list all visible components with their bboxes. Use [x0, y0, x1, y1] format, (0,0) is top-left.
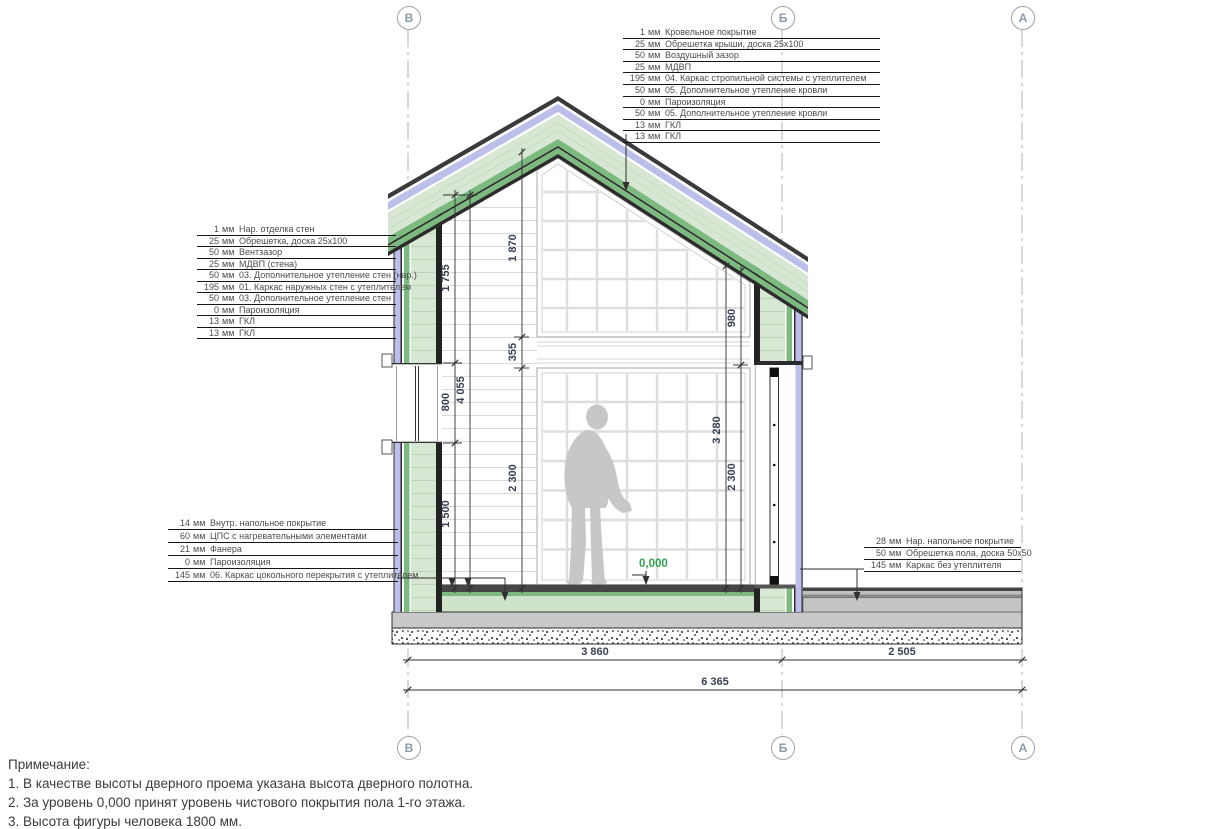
layer-thickness: 50: [623, 108, 645, 119]
layer-unit: мм: [645, 39, 665, 50]
layer-unit: мм: [645, 131, 665, 142]
callout-row: 195 мм 04. Каркас стропильной системы с …: [623, 73, 880, 85]
layer-unit: мм: [886, 548, 906, 559]
layer-thickness: 50: [623, 50, 645, 61]
left-wall-window: [391, 363, 442, 443]
layer-unit: мм: [190, 543, 210, 555]
layer-thickness: 195: [197, 282, 219, 293]
layer-unit: мм: [219, 293, 239, 304]
layer-unit: мм: [886, 560, 906, 571]
dim-span-house: 3 860: [581, 646, 609, 658]
layer-unit: мм: [645, 62, 665, 73]
floor-green-top: [397, 592, 801, 596]
layer-name: Внутр. напольное покрытие: [210, 517, 398, 529]
layer-unit: мм: [219, 316, 239, 327]
layer-thickness: 21: [168, 543, 190, 555]
axis-bubble-v-top: В: [397, 6, 421, 30]
layer-name: МДВП: [665, 62, 880, 73]
layer-thickness: 25: [623, 39, 645, 50]
callout-row: 50 мм 03. Дополнительное утепление стен: [197, 293, 396, 305]
layer-name: Нар. отделка стен: [239, 224, 396, 235]
layer-unit: мм: [645, 27, 665, 38]
callout-row: 13 мм ГКЛ: [197, 328, 396, 340]
notes-block: Примечание: 1. В качестве высоты дверног…: [8, 755, 473, 829]
callout-wall-layers: 1 мм Нар. отделка стен 25 мм Обрешетка, …: [197, 224, 396, 339]
layer-name: ГКЛ: [665, 120, 880, 131]
layer-unit: мм: [645, 73, 665, 84]
door-head-trim: [803, 356, 812, 369]
callout-row: 50 мм Воздушный зазор: [623, 50, 880, 62]
layer-name: Пароизоляция: [239, 305, 396, 316]
layer-name: 03. Дополнительное утепление стен: [239, 293, 396, 304]
callout-row: 13 мм ГКЛ: [623, 131, 880, 143]
callout-floor-terrace-layers: 28 мм Нар. напольное покрытие 50 мм Обре…: [864, 536, 1021, 572]
callout-floor-interior-layers: 14 мм Внутр. напольное покрытие 60 мм ЦП…: [168, 517, 398, 582]
layer-unit: мм: [886, 536, 906, 547]
callout-row: 0 мм Пароизоляция: [168, 556, 398, 569]
callout-row: 50 мм 03. Дополнительное утепление стен …: [197, 270, 396, 282]
layer-thickness: 14: [168, 517, 190, 529]
layer-name: Обрешетка пола, доска 50x50: [906, 548, 1032, 559]
layer-name: Пароизоляция: [665, 97, 880, 108]
layer-name: 04. Каркас стропильной системы с утеплит…: [665, 73, 880, 84]
layer-unit: мм: [190, 517, 210, 529]
layer-name: 05. Дополнительное утепление кровли: [665, 85, 880, 96]
callout-row: 28 мм Нар. напольное покрытие: [864, 536, 1021, 548]
notes-list: 1. В качестве высоты дверного проема ука…: [8, 774, 473, 829]
ground-hatch: [392, 628, 1022, 644]
layer-thickness: 50: [864, 548, 886, 559]
dim-right-total: 3 280: [711, 416, 723, 444]
dim-gable-right: 980: [726, 309, 738, 327]
layer-thickness: 13: [197, 328, 219, 339]
layer-unit: мм: [219, 247, 239, 258]
interior-floor-finish: [442, 585, 754, 593]
dim-window-top: 1 755: [440, 264, 452, 292]
layer-name: Пароизоляция: [210, 556, 398, 568]
axis-bubble-a-bottom: А: [1011, 736, 1035, 760]
layer-thickness: 0: [197, 305, 219, 316]
layer-unit: мм: [219, 236, 239, 247]
layer-name: ГКЛ: [239, 328, 396, 339]
section-drawing: 1 755 800 1 500 4 055 1 870 355 2 300 3 …: [0, 0, 1211, 829]
layer-thickness: 60: [168, 530, 190, 542]
layer-name: МДВП (стена): [239, 259, 396, 270]
callout-row: 145 мм 06. Каркас цокольного перекрытия …: [168, 569, 398, 582]
dim-gable-glazing: 1 870: [507, 234, 519, 262]
callout-row: 13 мм ГКЛ: [623, 120, 880, 132]
layer-thickness: 195: [623, 73, 645, 84]
layer-thickness: 25: [197, 259, 219, 270]
layer-thickness: 50: [197, 293, 219, 304]
dim-room-height: 2 300: [507, 464, 519, 492]
layer-thickness: 25: [197, 236, 219, 247]
layer-unit: мм: [645, 97, 665, 108]
callout-row: 145 мм Каркас без утеплителя: [864, 560, 1021, 572]
notes-title: Примечание:: [8, 755, 473, 774]
dim-band: 355: [507, 343, 519, 361]
layer-thickness: 1: [197, 224, 219, 235]
note-line: 3. Высота фигуры человека 1800 мм.: [8, 812, 473, 829]
window-head-trim: [382, 354, 392, 367]
dim-wall-total: 4 055: [455, 376, 467, 404]
callout-row: 13 мм ГКЛ: [197, 316, 396, 328]
callout-roof-layers: 1 мм Кровельное покрытие 25 мм Обрешетка…: [623, 27, 880, 143]
layer-name: Каркас без утеплителя: [906, 560, 1021, 571]
layer-thickness: 0: [623, 97, 645, 108]
layer-name: 05. Дополнительное утепление кровли: [665, 108, 880, 119]
door-threshold: [754, 585, 796, 589]
layer-name: Нар. напольное покрытие: [906, 536, 1021, 547]
floor-insulated-deck: [397, 596, 801, 612]
layer-name: Вентзазор: [239, 247, 396, 258]
layer-thickness: 13: [623, 131, 645, 142]
layer-name: Кровельное покрытие: [665, 27, 880, 38]
layer-unit: мм: [190, 556, 210, 568]
section-drawing-sheet: 1 755 800 1 500 4 055 1 870 355 2 300 3 …: [0, 0, 1211, 829]
layer-unit: мм: [190, 569, 210, 581]
callout-row: 0 мм Пароизоляция: [197, 305, 396, 317]
axis-bubble-b-top: Б: [771, 6, 795, 30]
layer-thickness: 25: [623, 62, 645, 73]
layer-thickness: 1: [623, 27, 645, 38]
callout-row: 60 мм ЦПС с нагревательными элементами: [168, 530, 398, 543]
layer-name: Обрешетка крыши, доска 25x100: [665, 39, 880, 50]
callout-row: 50 мм 05. Дополнительное утепление кровл…: [623, 85, 880, 97]
note-line: 2. За уровень 0,000 принят уровень чисто…: [8, 793, 473, 812]
layer-thickness: 50: [623, 85, 645, 96]
layer-thickness: 0: [168, 556, 190, 568]
layer-unit: мм: [219, 328, 239, 339]
callout-row: 195 мм 01. Каркас наружных стен с утепли…: [197, 282, 396, 294]
layer-name: ЦПС с нагревательными элементами: [210, 530, 398, 542]
foundation-slab: [392, 612, 1022, 628]
layer-name: 03. Дополнительное утепление стен (нар.): [239, 270, 417, 281]
layer-name: ГКЛ: [665, 131, 880, 142]
layer-unit: мм: [645, 108, 665, 119]
callout-row: 50 мм Обрешетка пола, доска 50x50: [864, 548, 1021, 560]
level-zero-label: 0,000: [639, 558, 668, 570]
layer-thickness: 13: [197, 316, 219, 327]
callout-row: 1 мм Нар. отделка стен: [197, 224, 396, 236]
dim-span-terrace: 2 505: [888, 646, 916, 658]
dim-door-height: 2 300: [726, 463, 738, 491]
dim-window-sill: 1 500: [440, 500, 452, 528]
layer-name: Фанера: [210, 543, 398, 555]
callout-row: 25 мм Обрешетка, доска 25x100: [197, 236, 396, 248]
layer-thickness: 28: [864, 536, 886, 547]
layer-thickness: 145: [168, 569, 190, 581]
callout-row: 1 мм Кровельное покрытие: [623, 27, 880, 39]
layer-unit: мм: [219, 224, 239, 235]
layer-unit: мм: [645, 120, 665, 131]
axis-bubble-b-bottom: Б: [771, 736, 795, 760]
window-sill-trim: [382, 440, 392, 454]
note-line: 1. В качестве высоты дверного проема ука…: [8, 774, 473, 793]
layer-unit: мм: [219, 259, 239, 270]
axis-bubble-a-top: А: [1011, 6, 1035, 30]
layer-name: 01. Каркас наружных стен с утеплителем: [239, 282, 411, 293]
layer-thickness: 50: [197, 247, 219, 258]
layer-thickness: 13: [623, 120, 645, 131]
callout-row: 50 мм Вентзазор: [197, 247, 396, 259]
callout-row: 0 мм Пароизоляция: [623, 97, 880, 109]
callout-row: 25 мм Обрешетка крыши, доска 25x100: [623, 39, 880, 51]
callout-row: 14 мм Внутр. напольное покрытие: [168, 517, 398, 530]
layer-thickness: 145: [864, 560, 886, 571]
layer-unit: мм: [219, 270, 239, 281]
layer-unit: мм: [219, 305, 239, 316]
layer-name: Воздушный зазор: [665, 50, 880, 61]
layer-unit: мм: [645, 50, 665, 61]
callout-row: 21 мм Фанера: [168, 543, 398, 556]
dim-window-height: 800: [440, 393, 452, 411]
layer-name: Обрешетка, доска 25x100: [239, 236, 396, 247]
callout-row: 25 мм МДВП: [623, 62, 880, 74]
entry-door: [754, 365, 796, 589]
layer-unit: мм: [219, 282, 239, 293]
layer-name: ГКЛ: [239, 316, 396, 327]
layer-thickness: 50: [197, 270, 219, 281]
layer-unit: мм: [645, 85, 665, 96]
callout-row: 25 мм МДВП (стена): [197, 259, 396, 271]
callout-row: 50 мм 05. Дополнительное утепление кровл…: [623, 108, 880, 120]
layer-name: 06. Каркас цокольного перекрытия с утепл…: [210, 569, 419, 581]
dim-span-total: 6 365: [701, 676, 729, 688]
layer-unit: мм: [190, 530, 210, 542]
door-lintel: [754, 361, 803, 365]
